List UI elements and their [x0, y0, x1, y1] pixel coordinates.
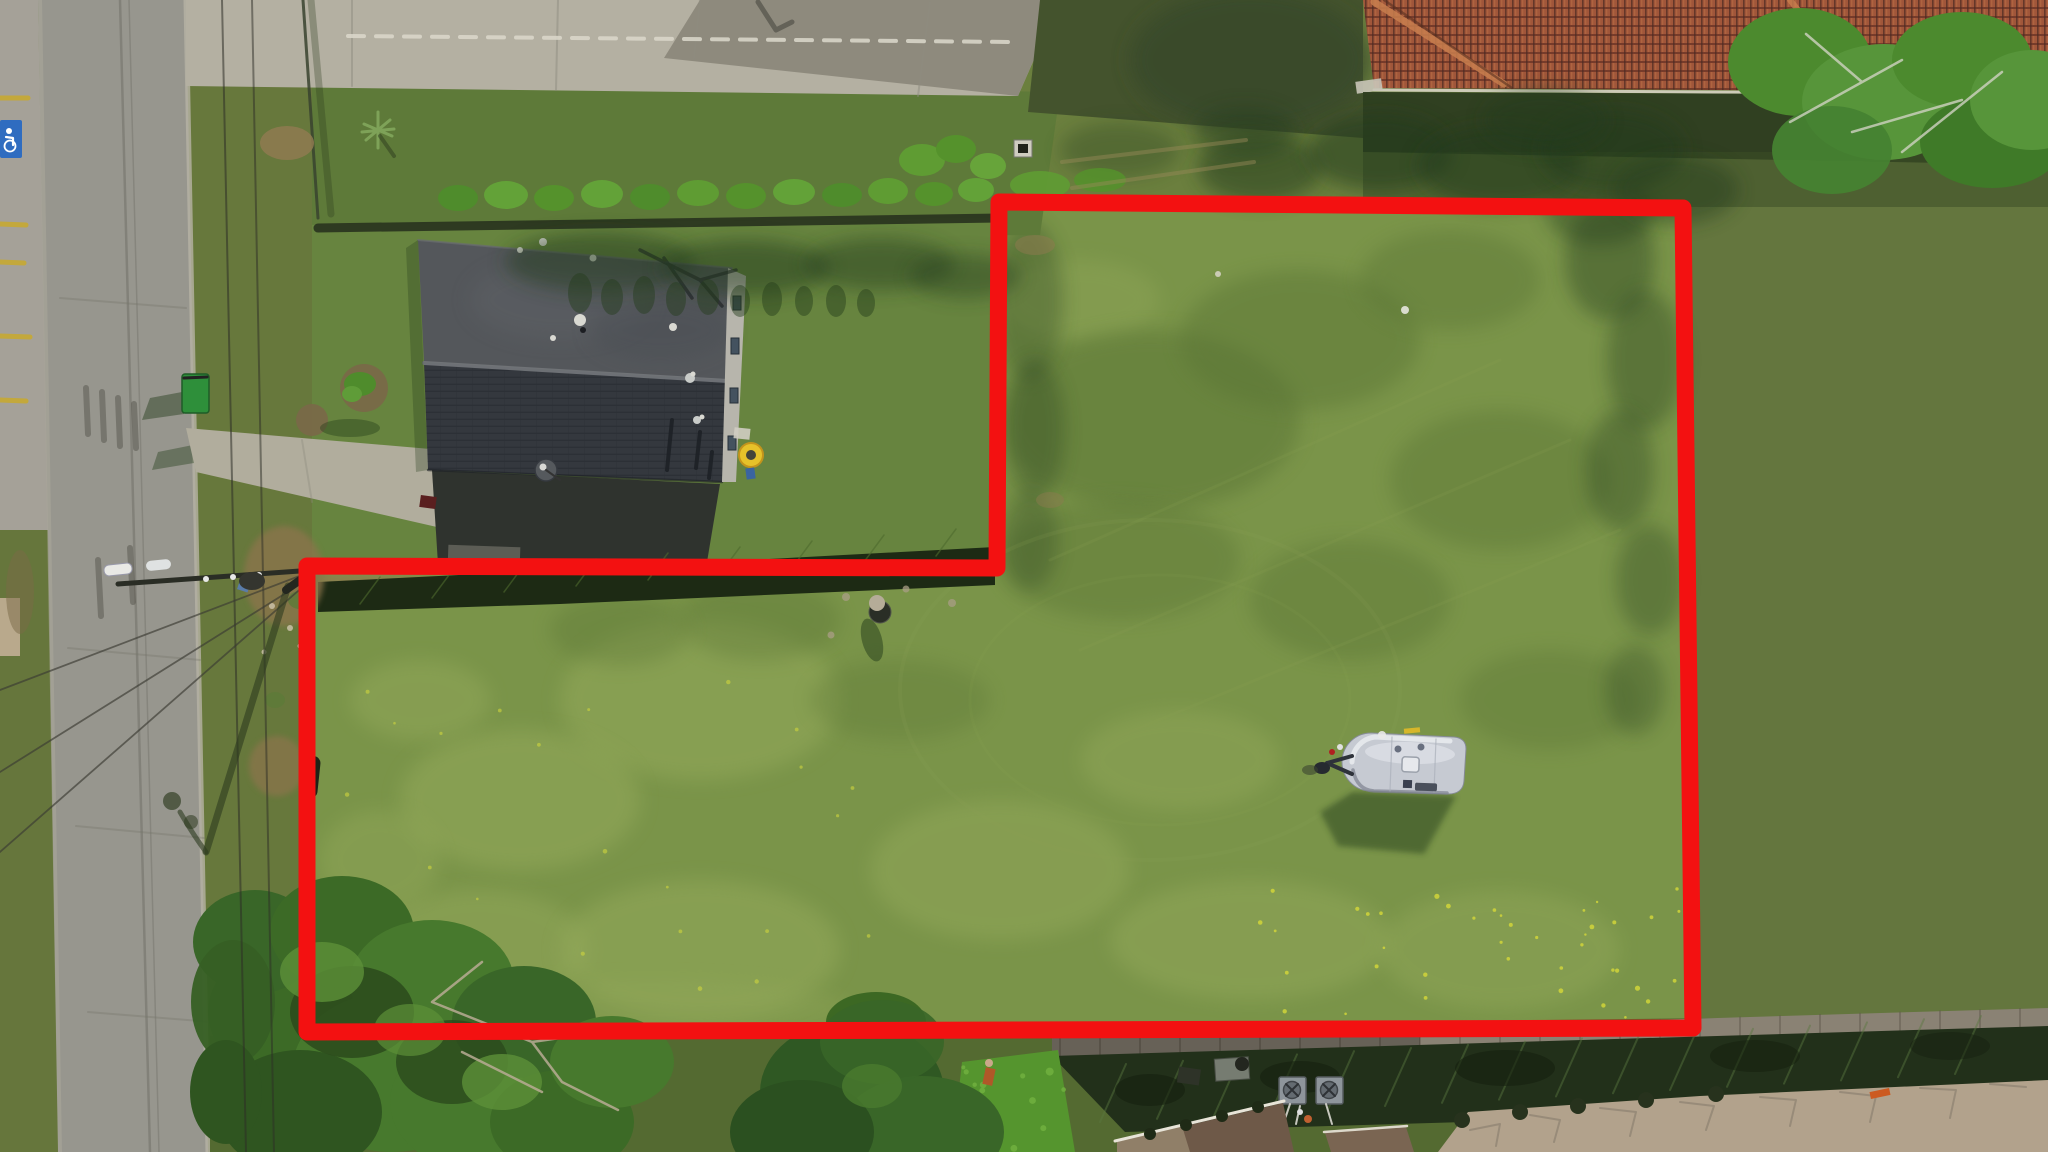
grass-texture-dark — [550, 595, 690, 665]
tree-shadow — [1005, 360, 1065, 500]
tree-canopy — [1772, 106, 1892, 194]
barrel-lid — [869, 595, 885, 611]
shadow-finger — [795, 286, 813, 316]
dandelions — [1500, 914, 1503, 917]
ivy-texture — [964, 1069, 969, 1074]
tree-shadow — [1607, 290, 1683, 430]
white-box — [733, 427, 750, 440]
dandelions — [603, 849, 608, 854]
hitch-white-item — [1337, 744, 1343, 750]
trailer-vent — [1418, 744, 1425, 751]
shade-blob — [1115, 1074, 1185, 1106]
photo-layers — [0, 0, 2048, 1152]
stone — [842, 593, 850, 601]
grass-texture — [1110, 880, 1390, 1000]
hedge — [958, 178, 994, 202]
hedge — [773, 179, 815, 205]
grass-texture — [1080, 710, 1280, 810]
dandelions — [1271, 889, 1275, 893]
shadow-finger — [568, 273, 592, 313]
ivy-texture — [1020, 1073, 1025, 1078]
dandelions — [1344, 1013, 1347, 1016]
lamp-shadow — [163, 792, 181, 810]
dandelions — [1423, 973, 1427, 977]
dandelions — [537, 743, 541, 747]
tree-highlight — [280, 942, 364, 1002]
dandelions — [476, 898, 479, 901]
dandelions — [1580, 943, 1583, 946]
dandelions — [1500, 941, 1503, 944]
dandelions — [393, 722, 396, 725]
propane-tank — [1378, 731, 1386, 739]
shrub-shadow — [320, 419, 380, 437]
ivy-texture — [973, 1083, 977, 1087]
dandelions — [1285, 971, 1289, 975]
roof-vent-dark — [580, 327, 586, 333]
aerial-photo — [0, 0, 2048, 1152]
dandelions — [1274, 930, 1277, 933]
ivy-texture — [1040, 1125, 1046, 1131]
hedge — [726, 183, 766, 209]
blue-item — [745, 467, 755, 479]
dandelions — [1677, 910, 1680, 913]
dirt-smear — [6, 550, 34, 634]
dandelions — [1375, 964, 1379, 968]
road — [38, 0, 208, 1152]
dandelions — [1559, 988, 1564, 993]
dirt-patch — [249, 736, 305, 796]
dandelions — [867, 934, 871, 938]
ivy-texture — [979, 1088, 985, 1094]
dandelions — [439, 732, 442, 735]
dandelions — [800, 766, 803, 769]
shadow-finger — [666, 282, 686, 316]
stone — [828, 632, 835, 639]
hitch-red-item — [1329, 749, 1335, 755]
dandelions — [1535, 936, 1538, 939]
white-item — [1297, 1109, 1303, 1115]
debris — [1401, 306, 1409, 314]
dandelions — [1615, 969, 1619, 973]
dandelions — [851, 786, 855, 790]
hedge — [534, 185, 574, 211]
hitch-ground-shadow — [1302, 765, 1318, 775]
dandelions — [1584, 933, 1586, 935]
insulator — [230, 574, 236, 580]
grass-texture-dark — [1390, 410, 1610, 550]
drain-box-grate — [1018, 144, 1028, 153]
rock — [287, 625, 293, 631]
trash-bin-green — [182, 374, 209, 413]
hedge — [677, 180, 719, 206]
hedge — [630, 184, 670, 210]
dandelions — [1646, 999, 1650, 1003]
orange-item — [1304, 1115, 1312, 1123]
tree-shadow — [1605, 645, 1665, 735]
ivy-texture — [1046, 1068, 1054, 1076]
dandelions — [1509, 923, 1513, 927]
tree-shadow — [1193, 106, 1297, 158]
dirt-patch — [260, 126, 314, 160]
dandelions — [587, 708, 590, 711]
pole-hardware — [239, 572, 265, 590]
lamp-shadow — [184, 815, 198, 829]
dandelions — [726, 680, 730, 684]
shadow-finger — [601, 279, 623, 315]
dandelions — [666, 886, 669, 889]
dandelions — [1635, 986, 1640, 991]
insulator — [203, 576, 209, 582]
hedge — [868, 178, 908, 204]
bin-handle — [184, 377, 207, 378]
debris — [1215, 271, 1221, 277]
stone — [903, 586, 910, 593]
dandelions — [1650, 915, 1654, 919]
tree-shadow — [1586, 410, 1654, 530]
dandelions — [1583, 909, 1586, 912]
dandelions — [836, 814, 839, 817]
grass-right-field — [1690, 130, 2048, 1030]
dandelions — [1673, 979, 1677, 983]
dandelions — [1493, 908, 1497, 912]
hedge — [915, 182, 953, 206]
ivy-texture — [961, 1065, 965, 1069]
patio-shrub — [1708, 1086, 1724, 1102]
bush — [936, 135, 976, 163]
roof-vent — [550, 335, 556, 341]
dandelions — [698, 986, 703, 991]
person-head — [985, 1059, 993, 1067]
grass-texture — [870, 800, 1130, 940]
dandelions — [1612, 920, 1616, 924]
dandelions — [679, 930, 683, 934]
trailer-vent — [1395, 746, 1402, 753]
dandelions — [1283, 1009, 1287, 1013]
dandelions — [366, 690, 370, 694]
dandelions — [1624, 1016, 1627, 1019]
grill — [1235, 1057, 1249, 1071]
shadow-finger — [762, 282, 782, 316]
tree-over-road — [190, 1040, 262, 1144]
dandelions — [428, 866, 432, 870]
equipment-box — [1177, 1067, 1201, 1086]
trailer-vent-box — [1403, 780, 1412, 788]
shadow-finger — [857, 289, 875, 317]
shadow-finger — [633, 276, 655, 314]
red-object — [419, 495, 437, 509]
grass-texture — [350, 660, 490, 740]
dandelions — [1596, 901, 1598, 903]
dandelions — [581, 952, 585, 956]
roof-plant — [1252, 1101, 1264, 1113]
patio-shrub — [1512, 1104, 1528, 1120]
hedge — [581, 180, 623, 208]
dandelions — [795, 728, 799, 732]
dirt-spot — [1036, 492, 1064, 508]
hedge — [484, 181, 528, 209]
dandelions — [1424, 996, 1428, 1000]
roof-vent — [574, 314, 586, 326]
pipe-cap — [691, 372, 696, 377]
window — [730, 388, 738, 403]
tree-highlight — [462, 1054, 542, 1110]
shade-blob — [1910, 1032, 1990, 1060]
tree-highlight — [842, 1064, 902, 1108]
window — [731, 338, 739, 354]
grass-texture — [1380, 890, 1620, 1010]
roof-plant — [1144, 1128, 1156, 1140]
dandelions — [1560, 966, 1564, 970]
dandelions — [1675, 887, 1678, 890]
dandelions — [1590, 925, 1595, 930]
trailer-roof-hatch — [1402, 757, 1420, 773]
dandelions — [1446, 904, 1451, 909]
street-lamp — [104, 563, 133, 577]
dandelions — [765, 929, 769, 933]
patio-shrub — [1454, 1112, 1470, 1128]
shadow-finger — [730, 285, 750, 317]
shrub — [342, 386, 362, 402]
grass-texture-dark — [1360, 230, 1540, 330]
dandelions — [1601, 1003, 1605, 1007]
dandelions — [1434, 894, 1439, 899]
tree-shadow — [1616, 525, 1684, 635]
patio-shrub — [1570, 1098, 1586, 1114]
dandelions — [498, 709, 502, 713]
dandelions — [1383, 947, 1386, 950]
tree-shadow — [1483, 90, 1607, 150]
shadow-finger — [826, 285, 846, 317]
ivy-texture — [1011, 1145, 1018, 1152]
hedge — [438, 185, 478, 211]
ivy-texture — [1061, 1087, 1066, 1092]
dirt-spot — [1015, 235, 1055, 255]
shadow-finger — [697, 279, 719, 315]
dandelions — [1472, 917, 1475, 920]
grass-tuft — [265, 692, 285, 708]
dandelions — [1258, 920, 1263, 925]
kiddie-pool-center — [746, 450, 756, 460]
shade-blob — [1710, 1040, 1800, 1072]
dandelions — [1379, 911, 1383, 915]
patio-shrub — [1638, 1092, 1654, 1108]
hedge — [822, 183, 862, 207]
dandelions — [345, 792, 349, 796]
trailer-dark-band — [1415, 783, 1437, 792]
roof-vent — [669, 323, 677, 331]
ivy-texture — [1029, 1097, 1036, 1104]
scene-canvas — [0, 0, 2048, 1152]
roof-plant — [1216, 1110, 1228, 1122]
bush — [970, 153, 1006, 179]
handicap-symbol — [6, 128, 12, 134]
stone — [948, 599, 956, 607]
dandelions — [1366, 912, 1370, 916]
pipe-cap — [700, 415, 705, 420]
roof-plant — [1180, 1119, 1192, 1131]
dandelions — [755, 979, 759, 983]
dandelions — [1355, 907, 1359, 911]
dandelions — [1507, 957, 1511, 961]
dandelions — [1611, 968, 1614, 971]
shade-blob — [1455, 1050, 1555, 1086]
